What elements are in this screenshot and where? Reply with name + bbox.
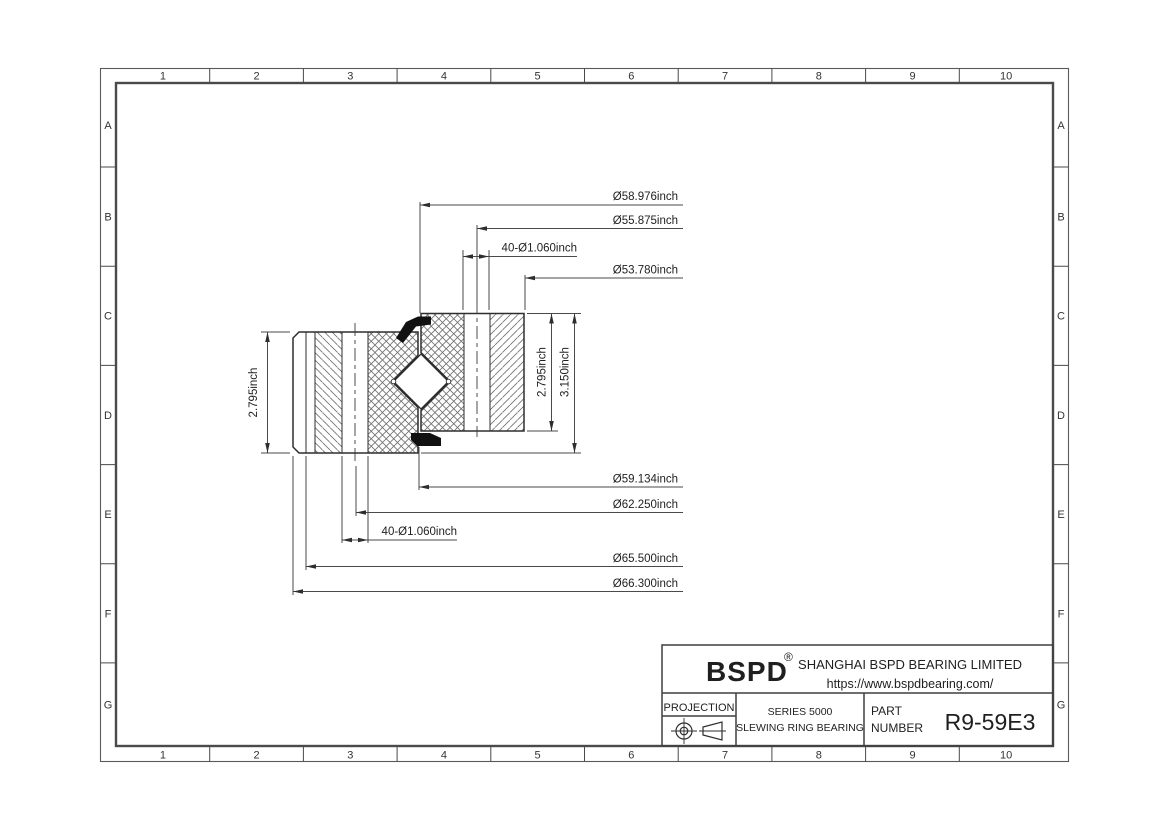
- dim-label-od-66300: Ø66.300inch: [613, 578, 678, 590]
- zone-column-label: 7: [722, 71, 728, 83]
- zone-column-label: 8: [816, 71, 822, 83]
- zone-row-label: C: [104, 311, 112, 323]
- zone-column-label: 3: [347, 750, 353, 762]
- zone-column-label: 5: [535, 71, 541, 83]
- website-url: https://www.bspdbearing.com/: [827, 677, 994, 691]
- zone-column-label: 1: [160, 71, 166, 83]
- company-name: SHANGHAI BSPD BEARING LIMITED: [798, 657, 1022, 672]
- bspd-logo: BSPD: [706, 656, 788, 687]
- drawing-sheet: 1 2 3 4 5 6 7 8 9 10 1 2 3 4 5 6 7 8 9 1…: [0, 0, 1170, 827]
- zone-column-label: 1: [160, 750, 166, 762]
- zone-row-label: B: [104, 212, 111, 224]
- zone-column-label: 9: [909, 750, 915, 762]
- zone-column-label: 2: [254, 750, 260, 762]
- zone-column-label: 5: [535, 750, 541, 762]
- zone-column-labels-bottom: 1 2 3 4 5 6 7 8 9 10: [160, 750, 1012, 762]
- zone-row-labels-right: A B C D E F G: [1057, 120, 1066, 712]
- dim-label-od-55875: Ø55.875inch: [613, 215, 678, 227]
- zone-column-label: 4: [441, 750, 447, 762]
- zone-row-label: F: [105, 609, 112, 621]
- zone-column-label: 6: [628, 71, 634, 83]
- dim-label-holes-top: 40-Ø1.060inch: [502, 243, 577, 255]
- dim-label-od-58976: Ø58.976inch: [613, 191, 678, 203]
- zone-column-label: 3: [347, 71, 353, 83]
- dim-label-id-59134: Ø59.134inch: [613, 474, 678, 486]
- bottom-seal: [411, 433, 441, 446]
- zone-row-label: G: [1057, 700, 1066, 712]
- zone-row-label: A: [104, 120, 112, 132]
- projection-symbol-icon: [671, 718, 726, 744]
- product-type: SLEWING RING BEARING: [736, 722, 864, 734]
- title-block: BSPD ® SHANGHAI BSPD BEARING LIMITED htt…: [662, 645, 1053, 746]
- roller-pivot-left: [391, 379, 396, 384]
- zone-row-label: A: [1057, 120, 1065, 132]
- roller-pivot-right: [446, 379, 451, 384]
- zone-column-label: 6: [628, 750, 634, 762]
- dim-label-od-53780: Ø53.780inch: [613, 265, 678, 277]
- zone-column-label: 7: [722, 750, 728, 762]
- zone-row-label: C: [1057, 311, 1065, 323]
- zone-column-label: 10: [1000, 71, 1012, 83]
- projection-label: PROJECTION: [664, 702, 735, 714]
- zone-column-label: 4: [441, 71, 447, 83]
- zone-column-label: 2: [254, 71, 260, 83]
- dim-label-inner-height: 2.795inch: [537, 347, 549, 397]
- zone-column-labels-top: 1 2 3 4 5 6 7 8 9 10: [160, 71, 1012, 83]
- zone-row-label: G: [104, 700, 113, 712]
- zone-row-label: E: [104, 509, 111, 521]
- dim-label-holes-bottom: 40-Ø1.060inch: [382, 526, 457, 538]
- dim-label-od-65500: Ø65.500inch: [613, 553, 678, 565]
- zone-row-label: F: [1058, 609, 1065, 621]
- zone-row-labels-left: A B C D E F G: [104, 120, 113, 712]
- zone-row-label: B: [1057, 212, 1064, 224]
- dim-label-bc-62250: Ø62.250inch: [613, 499, 678, 511]
- zone-row-label: D: [1057, 410, 1065, 422]
- zone-column-label: 10: [1000, 750, 1012, 762]
- outer-ring-section: [293, 323, 418, 462]
- part-number-label-line2: NUMBER: [871, 721, 923, 735]
- bearing-section-view: Ø58.976inch Ø55.875inch 40-Ø1.060inch Ø5…: [248, 191, 683, 595]
- zone-row-label: D: [104, 410, 112, 422]
- dimension-lines-lower: [293, 447, 683, 595]
- dim-label-outer-height: 2.795inch: [248, 368, 260, 418]
- dim-label-total-height: 3.150inch: [560, 347, 572, 397]
- part-number-value: R9-59E3: [945, 709, 1036, 735]
- registered-trademark-icon: ®: [784, 650, 793, 664]
- part-number-label-line1: PART: [871, 704, 903, 718]
- series-name: SERIES 5000: [768, 706, 833, 718]
- zone-column-label: 9: [909, 71, 915, 83]
- zone-column-label: 8: [816, 750, 822, 762]
- dimension-arrows-lower: [293, 485, 429, 594]
- zone-row-label: E: [1057, 509, 1064, 521]
- engineering-drawing: 1 2 3 4 5 6 7 8 9 10 1 2 3 4 5 6 7 8 9 1…: [0, 0, 1170, 827]
